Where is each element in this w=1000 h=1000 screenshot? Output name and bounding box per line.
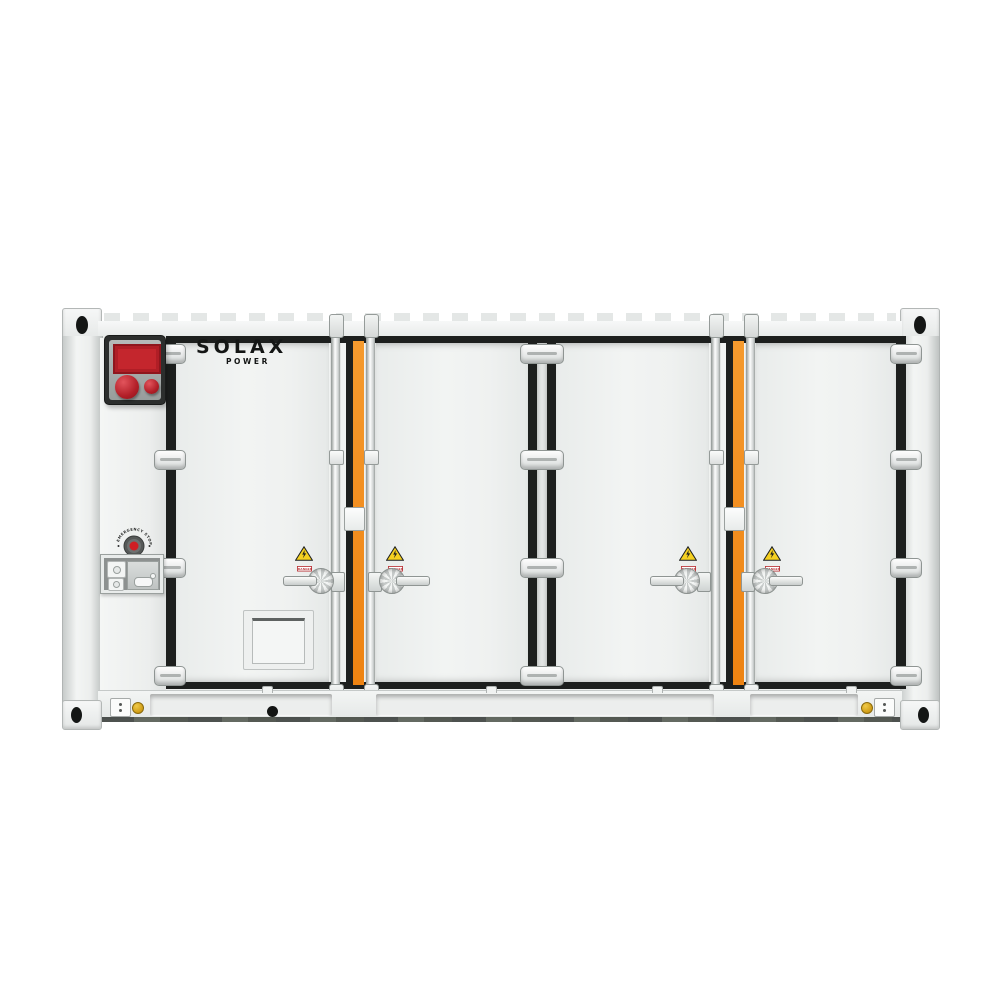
skirt-tab [846,686,857,693]
divider1-grip-clip [344,507,365,531]
skirt-panel-right [750,694,858,716]
corner-casting-bottom-left [62,700,102,730]
power-outlet-1[interactable] [107,561,126,578]
door1-hinge-frame [166,336,176,689]
door1-lock-rod[interactable] [331,316,340,702]
rod-guide [744,450,759,465]
hinge-door1 [154,450,186,470]
bess-container-product-image: SOLAX POWER EMERGENCY STOP [0,0,1000,1000]
rod-cap [744,314,759,338]
brand-name: SOLAX [196,338,270,357]
mid-hinge-gap [537,343,547,682]
skirt-tab [652,686,663,693]
maintenance-socket-box [100,554,164,594]
door3-hinge-frame [547,336,556,689]
high-voltage-icon [295,546,313,561]
power-outlet-2[interactable] [108,578,124,591]
skirt-panel-middle [376,694,714,716]
hinge-door2-3 [520,344,564,364]
skirt-tab [486,686,497,693]
casting-hole [76,316,88,334]
hinge-door2-3 [520,450,564,470]
high-voltage-warning-door1: DANGER [293,546,315,573]
rod-cap [709,314,724,338]
high-voltage-icon [763,546,781,561]
door2-hinge-frame [528,336,537,689]
corner-casting-bottom-right [900,700,940,730]
door-4[interactable] [756,343,896,682]
door3-handle[interactable] [650,576,684,586]
door4-lock-rod[interactable] [746,316,755,702]
ground-point-badge-left [132,702,144,714]
rocker-switch[interactable] [134,577,153,587]
door2-lock-rod[interactable] [366,316,375,702]
rod-guide [329,450,344,465]
switch-plate [127,561,159,590]
bottom-connector-plate-right [874,698,895,717]
hinge-door2-3 [520,558,564,578]
casting-hole [914,316,926,334]
door3-lock-rod[interactable] [711,316,720,702]
casting-hole [918,707,929,723]
door1-handle[interactable] [283,576,317,586]
high-voltage-icon [386,546,404,561]
corner-post-left [62,336,103,703]
drain-hole [267,706,278,717]
hinge-door4 [890,666,922,686]
rod-guide [709,450,724,465]
door-2[interactable] [376,343,528,682]
skirt-tab [262,686,273,693]
bottom-connector-plate-left [110,698,131,717]
door2-handle[interactable] [396,576,430,586]
rod-guide [364,450,379,465]
hinge-door4 [890,558,922,578]
fire-alarm-secondary-button[interactable] [144,379,159,394]
brand-sub-name: POWER [196,357,270,366]
hinge-door4 [890,344,922,364]
fire-alarm-main-button[interactable] [115,375,139,399]
hinge-door4 [890,450,922,470]
danger-label: DANGER [297,566,312,571]
door4-handle[interactable] [769,576,803,586]
door4-hinge-frame [896,336,906,689]
hinge-door1 [154,666,186,686]
high-voltage-icon [679,546,697,561]
rod-cap [329,314,344,338]
hinge-door2-3 [520,666,564,686]
door1-access-hatch[interactable] [243,610,314,670]
casting-hole [71,707,82,723]
ground-shadow-line [100,717,900,722]
fire-alarm-panel [104,335,166,405]
brand-logo: SOLAX POWER [196,338,270,366]
hatch-inner-panel [252,618,305,664]
door-3[interactable] [556,343,709,682]
roof-corrugation-teeth [104,313,896,321]
rod-cap [364,314,379,338]
indicator-dot [150,573,156,579]
skirt-panel-left [150,694,332,716]
fire-alarm-display [113,344,161,374]
divider2-grip-clip [724,507,745,531]
ground-point-badge-right [861,702,873,714]
emergency-stop-button[interactable] [130,542,139,551]
